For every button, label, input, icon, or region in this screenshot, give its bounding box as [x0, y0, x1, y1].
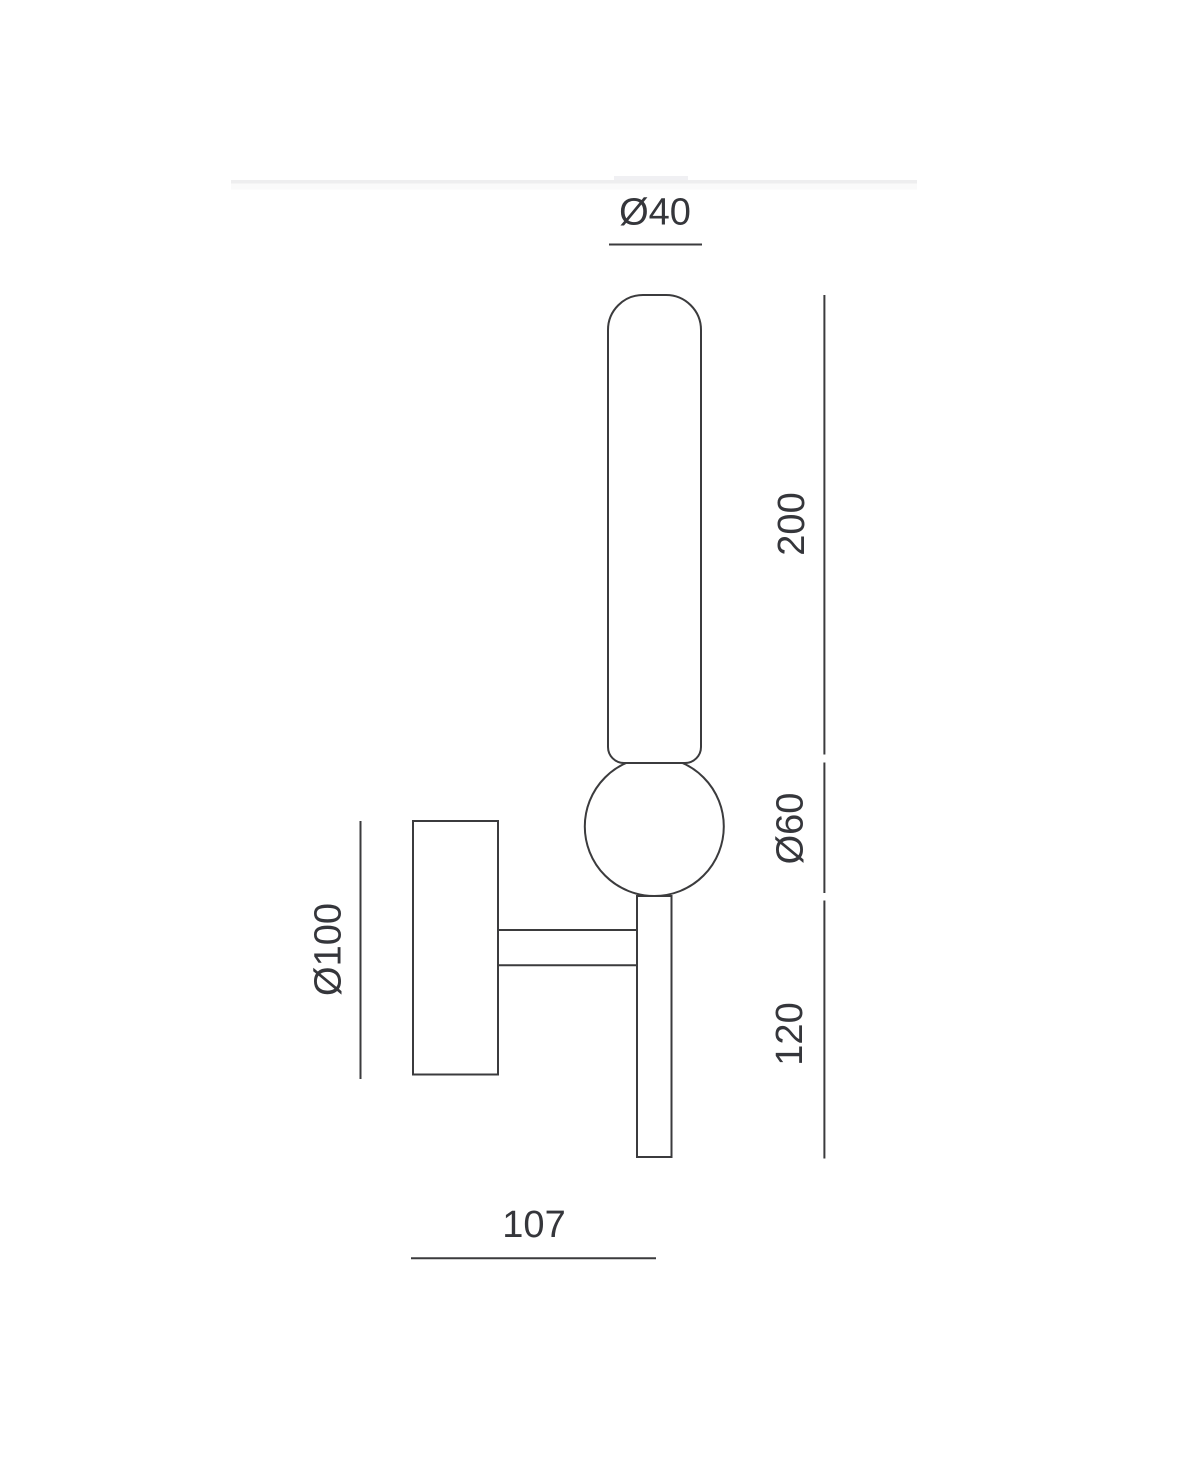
- svg-text:Ø40: Ø40: [619, 192, 691, 234]
- svg-text:Ø100: Ø100: [308, 903, 350, 996]
- svg-text:200: 200: [771, 492, 813, 555]
- svg-text:Ø60: Ø60: [770, 793, 812, 865]
- svg-text:107: 107: [502, 1204, 565, 1246]
- svg-text:120: 120: [769, 1002, 811, 1065]
